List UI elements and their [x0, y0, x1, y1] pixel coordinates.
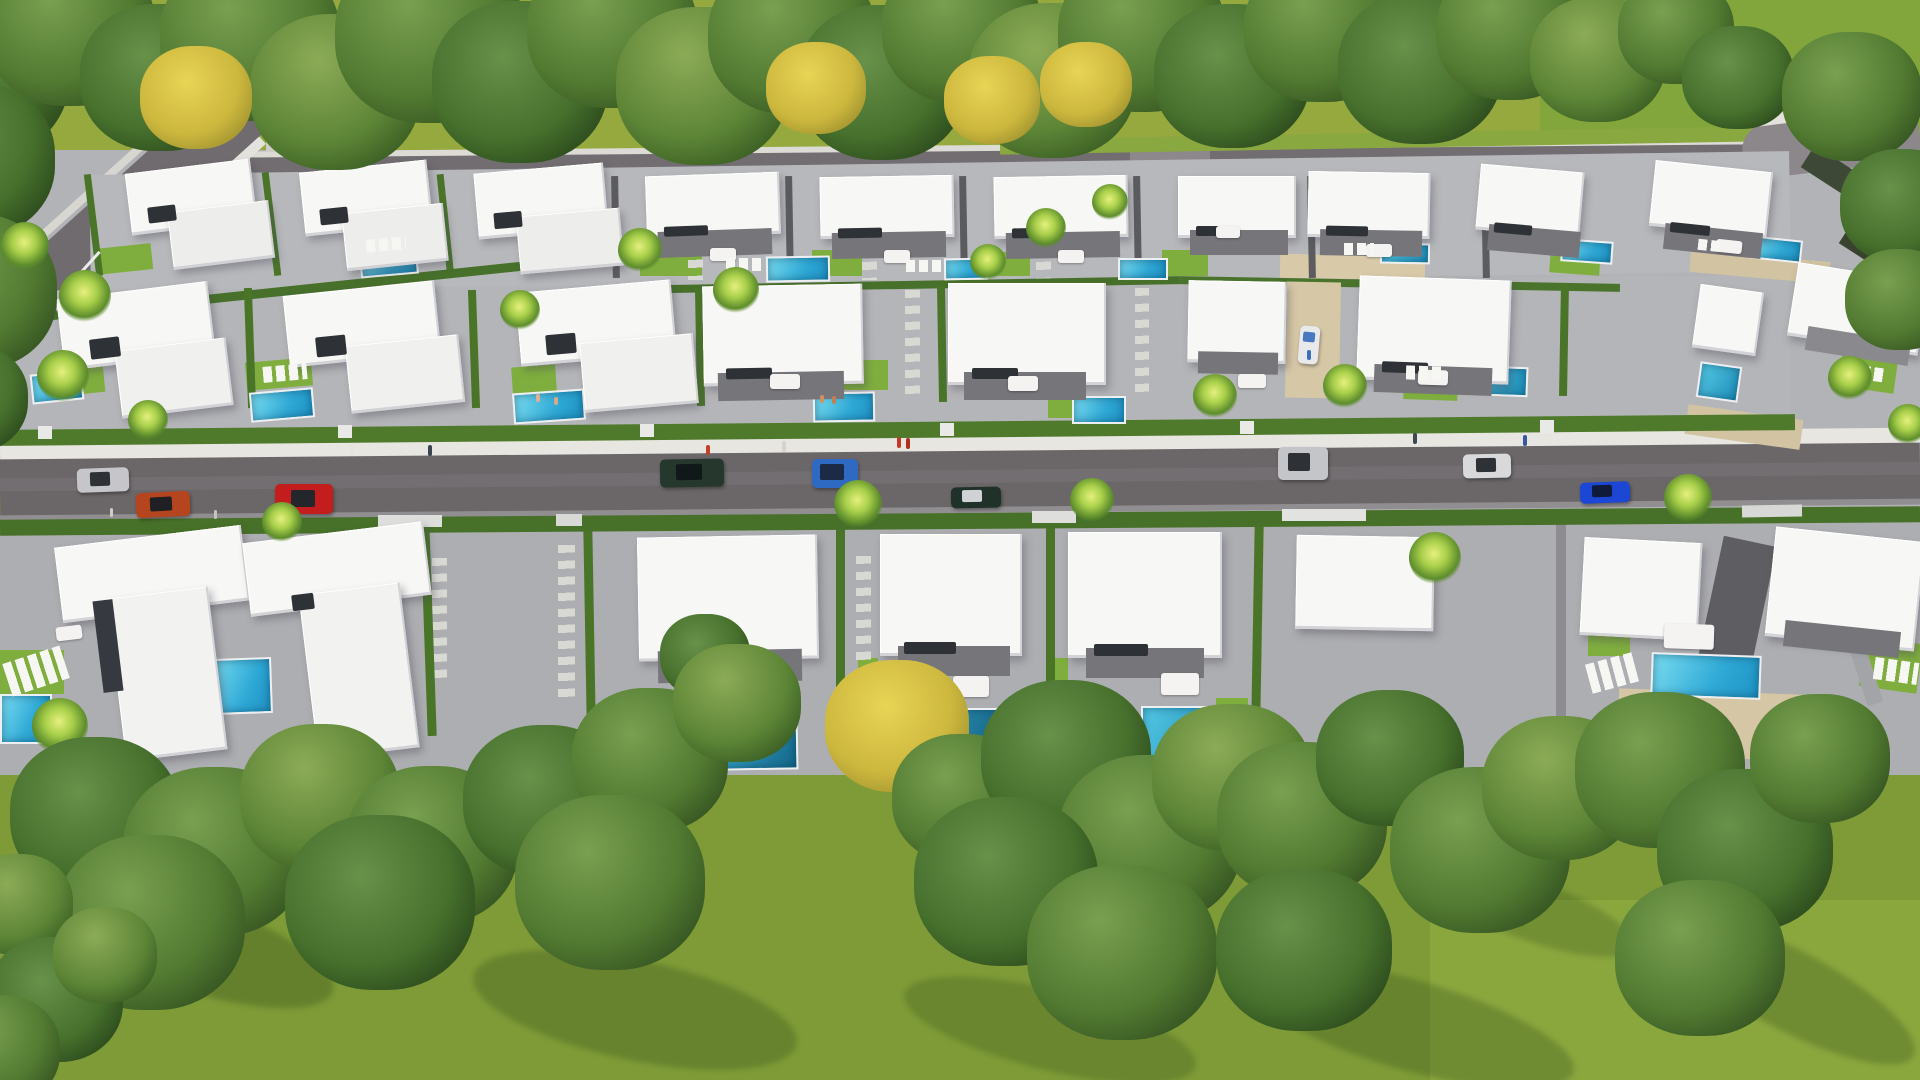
car-glass: [820, 464, 844, 480]
tree: [1682, 26, 1794, 129]
pedestrian: [897, 437, 901, 448]
palm: [500, 290, 540, 330]
dining-table: [1664, 623, 1715, 650]
stepping-path: [905, 290, 920, 400]
villa-wing: [579, 333, 699, 413]
pedestrian: [428, 445, 432, 456]
palm: [834, 480, 882, 528]
villa-glass: [664, 225, 708, 237]
pool: [1072, 396, 1126, 424]
pedestrian: [1523, 435, 1527, 446]
palm: [1888, 404, 1920, 444]
palm: [713, 267, 759, 313]
villa-glass: [315, 334, 347, 357]
swimmer: [554, 397, 558, 405]
villa-glass: [493, 211, 522, 229]
dining-table: [770, 374, 800, 389]
villa-glass: [545, 333, 577, 356]
villa-roof: [1068, 532, 1222, 658]
stepping-path: [558, 545, 575, 700]
stepping-path: [432, 558, 447, 678]
car-glass: [150, 496, 173, 511]
pedestrian: [214, 510, 217, 519]
palm: [1026, 208, 1066, 248]
aerial-villa-development-render: [0, 0, 1920, 1080]
dining-table: [1216, 226, 1240, 238]
sun-loungers: [906, 260, 946, 272]
palm: [970, 244, 1006, 280]
pedestrian: [782, 441, 786, 452]
pool: [766, 255, 830, 282]
pedestrian: [906, 438, 910, 449]
palm: [1828, 356, 1872, 400]
stepping-path: [1135, 288, 1149, 396]
tree: [515, 795, 705, 970]
pedestrian: [1307, 350, 1311, 360]
tree: [1615, 880, 1785, 1036]
palm: [1092, 184, 1128, 220]
palm: [618, 228, 662, 272]
pedestrian: [706, 445, 710, 455]
tree-yellow: [140, 46, 252, 149]
pool: [249, 387, 315, 422]
pool: [1696, 361, 1743, 402]
gate-wall: [1282, 509, 1366, 521]
villa-glass: [726, 368, 772, 380]
palm: [37, 350, 89, 402]
car-glass: [90, 472, 110, 487]
swimmer: [832, 396, 836, 404]
van-glass: [1303, 331, 1316, 342]
tree: [285, 815, 475, 990]
carport-shade: [1198, 351, 1278, 374]
tree-yellow: [1040, 42, 1132, 127]
pool: [1118, 258, 1168, 280]
dining-table: [1058, 250, 1084, 263]
boundary-wall: [1556, 522, 1566, 727]
sun-loungers: [1344, 243, 1374, 255]
villa-glass: [291, 593, 315, 612]
villa-glass: [838, 228, 882, 239]
tree: [1216, 869, 1392, 1031]
pedestrian: [1413, 433, 1417, 444]
palm: [1, 222, 49, 270]
palm: [1070, 478, 1114, 522]
gate-pillar: [640, 424, 654, 437]
lawn-patch: [511, 364, 557, 393]
sun-loungers: [1406, 365, 1444, 380]
swimmer: [820, 395, 824, 403]
villa-glass: [1326, 226, 1368, 237]
villa-glass: [1094, 644, 1148, 656]
gate-wall: [556, 514, 582, 526]
villa-wing: [345, 334, 465, 414]
villa-roof: [880, 534, 1022, 656]
pedestrian: [110, 508, 113, 517]
palm: [1409, 532, 1461, 584]
tree: [673, 644, 801, 762]
gate-pillar: [1240, 421, 1254, 434]
gate-pillar: [1540, 420, 1554, 433]
palm: [59, 270, 111, 322]
villa-glass: [147, 204, 177, 223]
tree-yellow: [944, 56, 1040, 144]
swimmer: [536, 394, 540, 402]
stepping-path: [856, 556, 871, 660]
tree: [1027, 865, 1217, 1040]
palm: [128, 400, 168, 440]
pedestrian: [350, 443, 354, 454]
gate-wall: [1032, 511, 1076, 523]
villa-wing: [516, 208, 625, 275]
dining-table: [1008, 376, 1038, 391]
bush: [53, 907, 157, 1003]
palm: [262, 502, 302, 542]
tree: [1750, 694, 1890, 823]
villa-glass: [89, 336, 121, 360]
car-glass: [1288, 453, 1310, 471]
palm: [1323, 364, 1367, 408]
car-glass: [291, 490, 315, 507]
car-glass: [1592, 485, 1612, 498]
villa-glass: [904, 642, 956, 654]
car-glass: [1476, 458, 1496, 472]
villa-wing: [106, 586, 227, 761]
gate-pillar: [940, 423, 954, 436]
tree-yellow: [766, 42, 866, 134]
gate-pillar: [338, 425, 352, 438]
villa-roof: [1692, 284, 1764, 356]
gate-wall: [1742, 504, 1802, 517]
palm: [1193, 374, 1237, 418]
sun-loungers: [1697, 239, 1722, 252]
villa-glass: [319, 207, 349, 226]
pool: [512, 389, 586, 425]
car-glass: [676, 464, 702, 480]
gate-pillar: [38, 426, 52, 439]
car-glass: [962, 490, 982, 502]
tree: [1782, 32, 1920, 161]
dining-table: [1161, 673, 1199, 695]
palm: [1664, 474, 1712, 522]
villa-wing: [167, 200, 275, 270]
dining-table: [1238, 374, 1266, 388]
